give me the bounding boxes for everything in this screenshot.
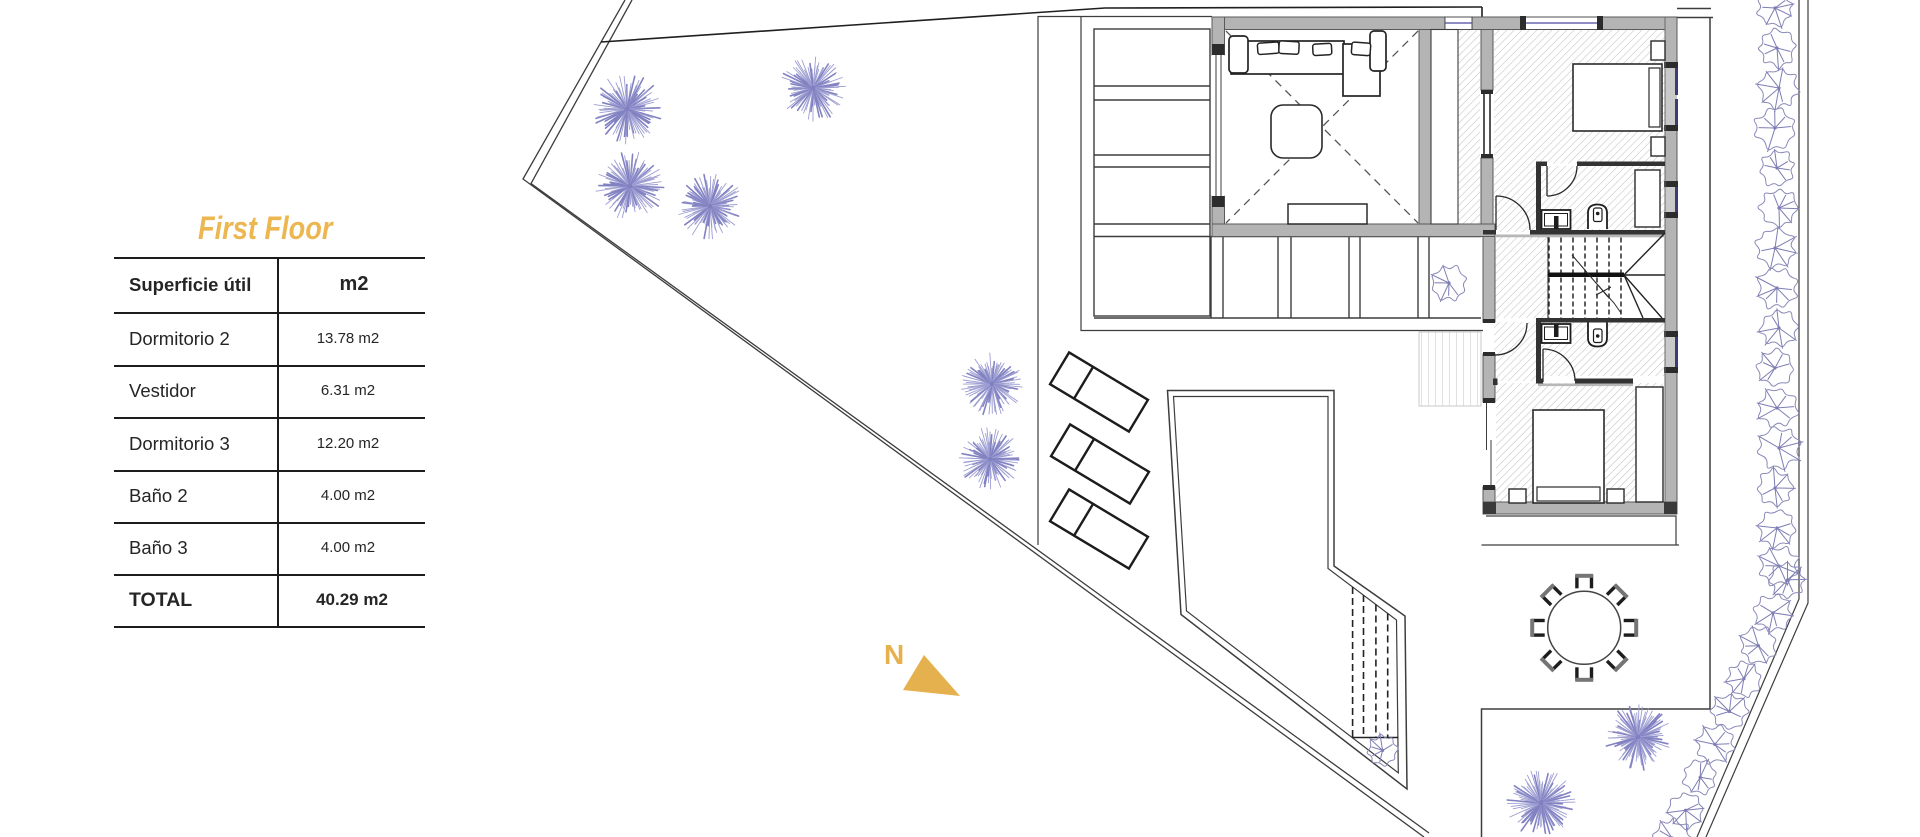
svg-text:N: N bbox=[884, 639, 904, 670]
